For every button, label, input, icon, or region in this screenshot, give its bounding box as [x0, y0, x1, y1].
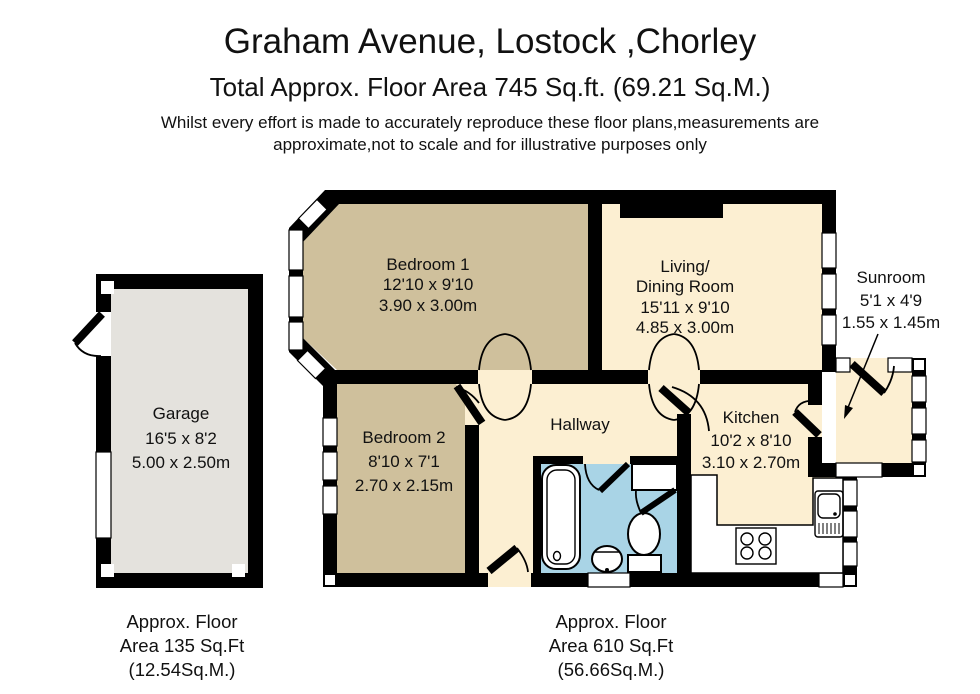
- svg-text:Kitchen: Kitchen: [723, 408, 780, 427]
- svg-text:Bedroom 2: Bedroom 2: [362, 428, 445, 447]
- bedroom1-bay-window: [289, 276, 303, 317]
- cupboard: [632, 464, 677, 490]
- sunroom-window: [912, 376, 926, 402]
- svg-text:Living/: Living/: [660, 257, 709, 276]
- sunroom-window: [912, 440, 926, 462]
- svg-text:3.10 x 2.70m: 3.10 x 2.70m: [702, 453, 800, 472]
- svg-text:(12.54Sq.M.): (12.54Sq.M.): [129, 659, 236, 680]
- svg-text:Approx. Floor: Approx. Floor: [555, 611, 666, 632]
- svg-text:(56.66Sq.M.): (56.66Sq.M.): [558, 659, 665, 680]
- bedroom1-bay-window: [289, 322, 303, 350]
- svg-text:10'2 x 8'10: 10'2 x 8'10: [710, 431, 791, 450]
- bedroom2-window: [323, 486, 337, 514]
- sunroom-window: [836, 358, 850, 372]
- sunroom-window: [836, 463, 882, 477]
- svg-text:Area 135 Sq.Ft: Area 135 Sq.Ft: [120, 635, 244, 656]
- sunroom-label: Sunroom 5'1 x 4'9 1.55 x 1.45m: [842, 268, 940, 332]
- svg-text:4.85 x 3.00m: 4.85 x 3.00m: [636, 318, 734, 337]
- svg-text:Sunroom: Sunroom: [857, 268, 926, 287]
- bedroom1-bay-window: [289, 230, 303, 270]
- bathroom-window: [588, 573, 630, 587]
- sunroom-window: [888, 358, 912, 372]
- living-room-window: [822, 233, 836, 268]
- kitchen-window: [843, 480, 857, 506]
- svg-text:Bedroom 1: Bedroom 1: [386, 255, 469, 274]
- garage-dims-imperial: 16'5 x 8'2: [145, 429, 217, 448]
- garage: Garage 16'5 x 8'2 5.00 x 2.50m: [75, 274, 263, 588]
- svg-text:Hallway: Hallway: [550, 415, 610, 434]
- living-room-window: [822, 315, 836, 345]
- bedroom2-window: [323, 452, 337, 480]
- svg-text:5'1 x 4'9: 5'1 x 4'9: [860, 291, 922, 310]
- kitchen-window: [843, 511, 857, 537]
- hallway-label: Hallway: [550, 415, 610, 434]
- svg-text:15'11 x 9'10: 15'11 x 9'10: [640, 298, 729, 317]
- living-room-window: [822, 274, 836, 309]
- chimney-breast: [620, 204, 723, 218]
- kitchen-window: [843, 542, 857, 566]
- bedroom2-label: Bedroom 2 8'10 x 7'1 2.70 x 2.15m: [355, 428, 453, 495]
- floor-plan-drawing: Garage 16'5 x 8'2 5.00 x 2.50m: [0, 0, 980, 694]
- garage-name: Garage: [153, 404, 210, 423]
- svg-text:12'10 x 9'10: 12'10 x 9'10: [383, 275, 474, 294]
- svg-text:1.55 x 1.45m: 1.55 x 1.45m: [842, 313, 940, 332]
- garage-footnote: Approx. Floor Area 135 Sq.Ft (12.54Sq.M.…: [120, 611, 244, 680]
- main-building: Bedroom 1 12'10 x 9'10 3.90 x 3.00m Livi…: [289, 190, 940, 587]
- svg-text:2.70 x 2.15m: 2.70 x 2.15m: [355, 476, 453, 495]
- svg-text:3.90 x 3.00m: 3.90 x 3.00m: [379, 296, 477, 315]
- bedroom1-label: Bedroom 1 12'10 x 9'10 3.90 x 3.00m: [379, 255, 477, 315]
- toilet-bowl: [628, 513, 660, 555]
- svg-text:Dining Room: Dining Room: [636, 277, 734, 296]
- garage-dims-metric: 5.00 x 2.50m: [132, 453, 230, 472]
- svg-text:Approx. Floor: Approx. Floor: [126, 611, 237, 632]
- svg-text:8'10 x 7'1: 8'10 x 7'1: [368, 452, 440, 471]
- main-footnote: Approx. Floor Area 610 Sq.Ft (56.66Sq.M.…: [549, 611, 673, 680]
- garage-window: [96, 452, 111, 538]
- sunroom-window: [912, 408, 926, 434]
- floorplan-page: Graham Avenue, Lostock ,Chorley Total Ap…: [0, 0, 980, 694]
- bedroom2-window: [323, 418, 337, 446]
- svg-text:Area 610 Sq.Ft: Area 610 Sq.Ft: [549, 635, 673, 656]
- kitchen-window: [819, 573, 843, 587]
- toilet-cistern: [628, 555, 661, 572]
